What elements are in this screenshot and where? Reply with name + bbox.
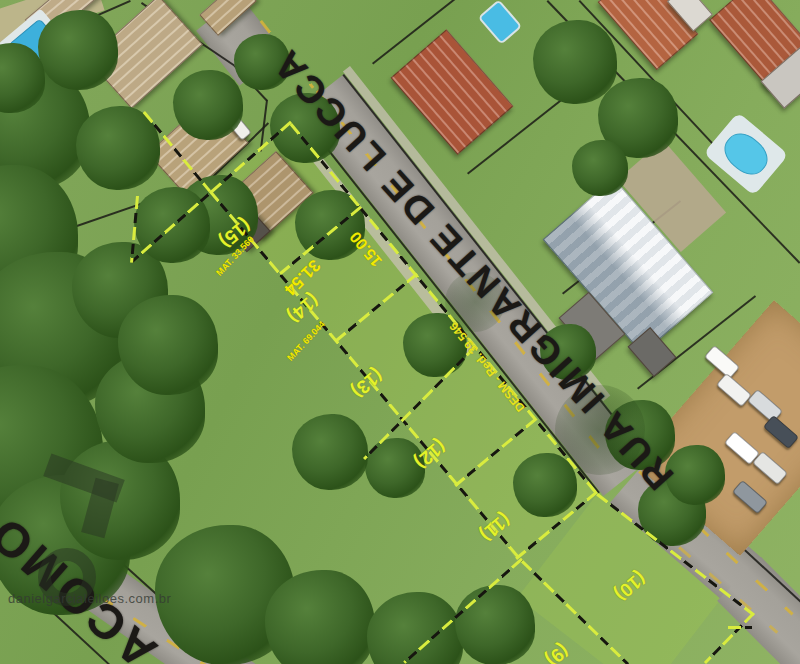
red-tile-house bbox=[391, 29, 514, 155]
registration-label: MAT. 69.044 bbox=[285, 319, 327, 363]
aerial-map: (15) (14) (13) (12) (11) (10) (9) 31.54 … bbox=[0, 0, 800, 664]
lot-boundary-corner-jog bbox=[728, 626, 752, 629]
tree bbox=[38, 10, 118, 90]
tree bbox=[265, 570, 375, 664]
lot-boundary-lot10-side bbox=[704, 612, 755, 664]
tree bbox=[455, 585, 535, 664]
tree bbox=[533, 20, 617, 104]
swimming-pool bbox=[478, 0, 523, 45]
tree bbox=[513, 453, 577, 517]
lot-number-9: (9) bbox=[541, 639, 573, 664]
tree bbox=[118, 295, 218, 395]
watermark-url: danielgarcialeiloes.com.br bbox=[8, 591, 171, 606]
tree bbox=[292, 414, 368, 490]
tree bbox=[173, 70, 243, 140]
tree bbox=[572, 140, 628, 196]
